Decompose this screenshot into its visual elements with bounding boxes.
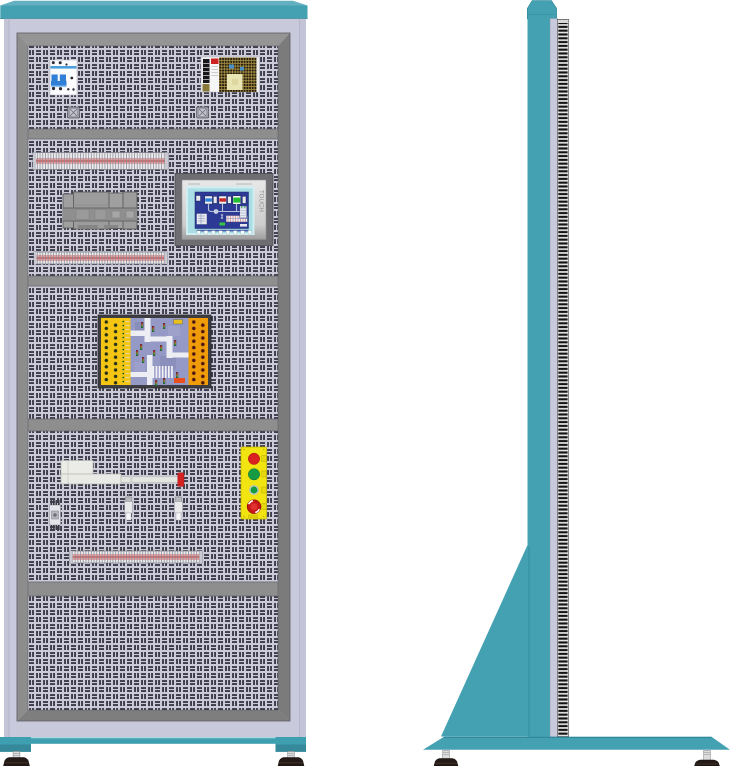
svg-text:TOUCH: TOUCH [258, 190, 265, 212]
